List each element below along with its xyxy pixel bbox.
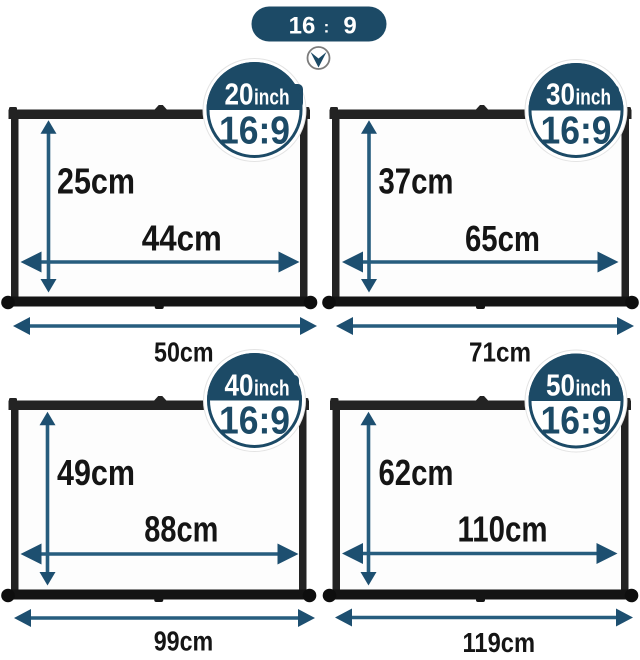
svg-text:110cm: 110cm	[458, 509, 548, 550]
svg-text::: :	[324, 18, 330, 37]
svg-text:16:9: 16:9	[541, 400, 612, 443]
svg-text:65cm: 65cm	[465, 218, 540, 259]
svg-text:inch: inch	[576, 376, 612, 401]
svg-text:49cm: 49cm	[57, 452, 135, 493]
svg-text:16: 16	[289, 13, 316, 40]
svg-text:62cm: 62cm	[379, 452, 454, 493]
svg-text:40: 40	[225, 368, 254, 403]
svg-text:20: 20	[225, 77, 254, 112]
svg-text:71cm: 71cm	[469, 337, 531, 368]
svg-text:16:9: 16:9	[219, 400, 290, 443]
svg-text:119cm: 119cm	[463, 627, 536, 655]
svg-text:37cm: 37cm	[379, 161, 454, 202]
svg-text:16:9: 16:9	[219, 110, 290, 153]
svg-text:inch: inch	[576, 85, 612, 110]
svg-text:50: 50	[546, 368, 575, 403]
svg-text:9: 9	[343, 13, 356, 40]
svg-text:88cm: 88cm	[144, 509, 218, 550]
svg-text:99cm: 99cm	[154, 626, 214, 656]
svg-text:50cm: 50cm	[154, 337, 214, 368]
svg-text:16:9: 16:9	[541, 110, 612, 153]
svg-text:25cm: 25cm	[57, 161, 135, 202]
svg-text:30: 30	[546, 77, 575, 112]
svg-text:inch: inch	[254, 376, 290, 401]
svg-text:44cm: 44cm	[142, 218, 222, 259]
svg-text:inch: inch	[254, 85, 290, 110]
